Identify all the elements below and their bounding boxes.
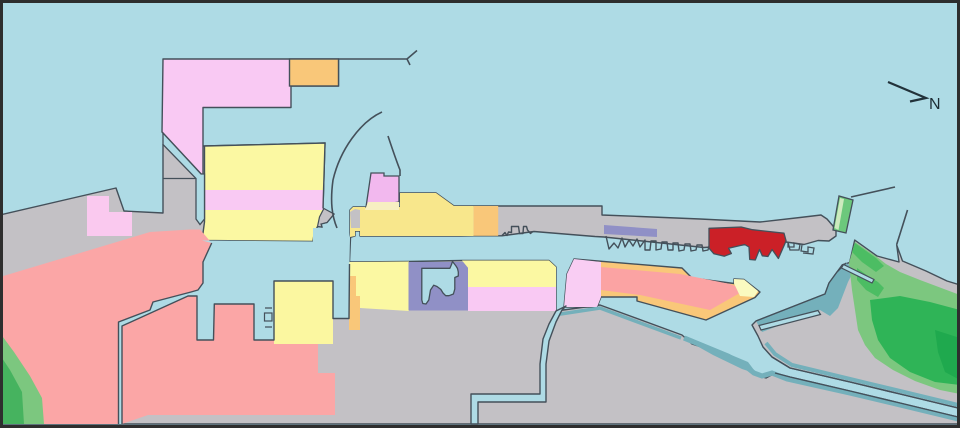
svg-text:N: N xyxy=(929,96,941,113)
